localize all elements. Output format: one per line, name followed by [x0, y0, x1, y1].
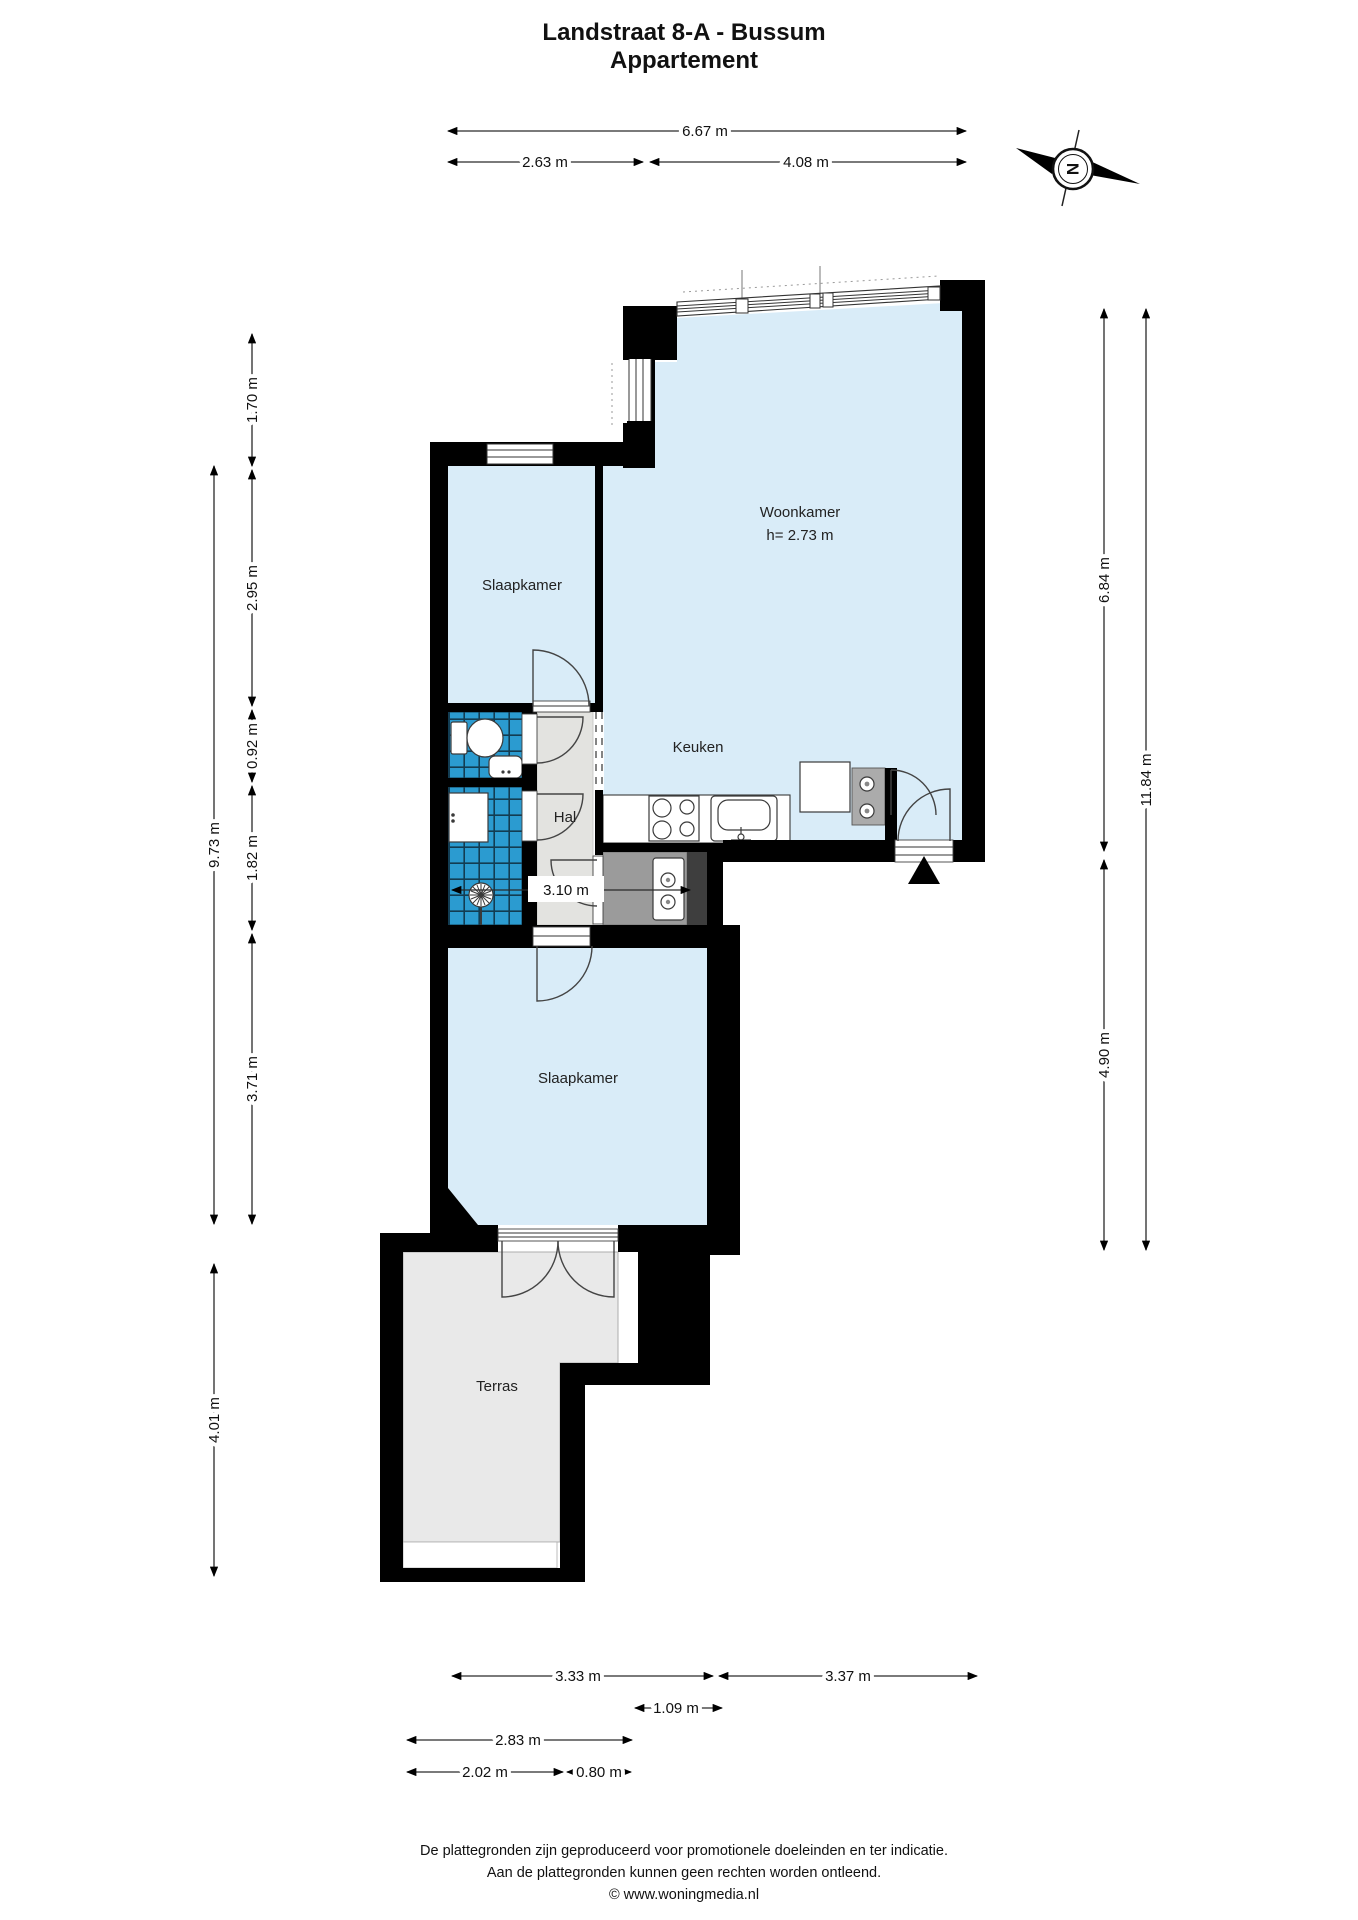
footer-line-3: © www.woningmedia.nl [609, 1887, 759, 1903]
footer-disclaimer: De plattegronden zijn geproduceerd voor … [420, 1843, 948, 1903]
dimension-left-3: 0.92 m [244, 710, 261, 782]
dimension-right-lower: 4.90 m [1096, 860, 1113, 1250]
dimension-left-2: 2.95 m [244, 470, 261, 706]
svg-text:6.84 m: 6.84 m [1096, 557, 1113, 603]
svg-text:0.80 m: 0.80 m [576, 1764, 622, 1781]
label-woonkamer: Woonkamer [760, 504, 841, 521]
svg-text:3.33 m: 3.33 m [555, 1668, 601, 1685]
dimension-left-total: 9.73 m [206, 466, 223, 1224]
meter-cabinet [852, 768, 885, 825]
svg-text:1.70 m: 1.70 m [244, 377, 261, 423]
svg-text:4.01 m: 4.01 m [206, 1397, 223, 1443]
svg-text:4.90 m: 4.90 m [1096, 1032, 1113, 1078]
dimension-top-left: 2.63 m [448, 154, 643, 171]
window-left-icon [612, 354, 653, 426]
dimension-bottom-5: 2.02 m [407, 1764, 563, 1781]
dimension-top-total: 6.67 m [448, 123, 966, 140]
svg-text:0.92 m: 0.92 m [244, 723, 261, 769]
dimension-bottom-4: 2.83 m [407, 1732, 632, 1749]
dimension-left-terras: 4.01 m [206, 1264, 223, 1576]
room-terras [403, 1252, 618, 1542]
boiler-icon [653, 858, 684, 920]
compass-north-label: N [1064, 163, 1083, 175]
label-slaapkamer-boven: Slaapkamer [482, 577, 562, 594]
room-woonkamer [603, 302, 962, 842]
page-title: Landstraat 8-A - Bussum Appartement [542, 19, 825, 74]
dimension-bottom-1: 3.33 m [452, 1668, 713, 1685]
shaft [687, 852, 707, 925]
sink-icon [711, 796, 777, 841]
svg-text:1.09 m: 1.09 m [653, 1700, 699, 1717]
floor-plan-svg: Landstraat 8-A - Bussum Appartement N [0, 0, 1358, 1920]
footer-line-2: Aan de plattegronden kunnen geen rechten… [487, 1865, 881, 1881]
title-address: Landstraat 8-A - Bussum [542, 19, 825, 46]
terras-opening [403, 1542, 557, 1568]
svg-text:11.84 m: 11.84 m [1138, 753, 1155, 806]
dimension-bottom-6: 0.80 m [567, 1764, 631, 1781]
opening-keuken [594, 712, 604, 790]
dimension-bottom-3: 1.09 m [635, 1700, 722, 1717]
dimension-right-total: 11.84 m [1138, 309, 1155, 1250]
stove-icon [649, 796, 699, 841]
svg-text:4.08 m: 4.08 m [783, 154, 829, 171]
dimension-left-4: 1.82 m [244, 786, 261, 930]
label-slaapkamer-onder: Slaapkamer [538, 1070, 618, 1087]
dimension-left-1: 1.70 m [244, 334, 261, 466]
label-woonkamer-height: h= 2.73 m [766, 527, 833, 544]
svg-text:9.73 m: 9.73 m [206, 822, 223, 868]
label-keuken: Keuken [673, 739, 724, 756]
svg-text:2.63 m: 2.63 m [522, 154, 568, 171]
window-bedroom-icon [487, 444, 553, 464]
dimension-bottom-2: 3.37 m [719, 1668, 977, 1685]
toilet-icon [451, 719, 503, 757]
svg-text:3.71 m: 3.71 m [244, 1056, 261, 1102]
svg-text:6.67 m: 6.67 m [682, 123, 728, 140]
dimension-top-right: 4.08 m [650, 154, 966, 171]
footer-line-1: De plattegronden zijn geproduceerd voor … [420, 1843, 948, 1859]
label-hal: Hal [554, 809, 577, 826]
svg-text:3.37 m: 3.37 m [825, 1668, 871, 1685]
dimension-left-5: 3.71 m [244, 934, 261, 1224]
compass-icon: N [1016, 130, 1140, 206]
svg-text:1.82 m: 1.82 m [244, 835, 261, 881]
dimension-right-upper: 6.84 m [1096, 309, 1113, 851]
fridge-icon [800, 762, 850, 812]
svg-text:2.02 m: 2.02 m [462, 1764, 508, 1781]
label-terras: Terras [476, 1378, 518, 1395]
toilet-sink-icon [489, 756, 522, 778]
svg-text:2.83 m: 2.83 m [495, 1732, 541, 1749]
title-type: Appartement [610, 47, 758, 74]
svg-text:3.10 m: 3.10 m [543, 882, 589, 899]
svg-text:2.95 m: 2.95 m [244, 565, 261, 611]
washer-icon [449, 793, 488, 842]
